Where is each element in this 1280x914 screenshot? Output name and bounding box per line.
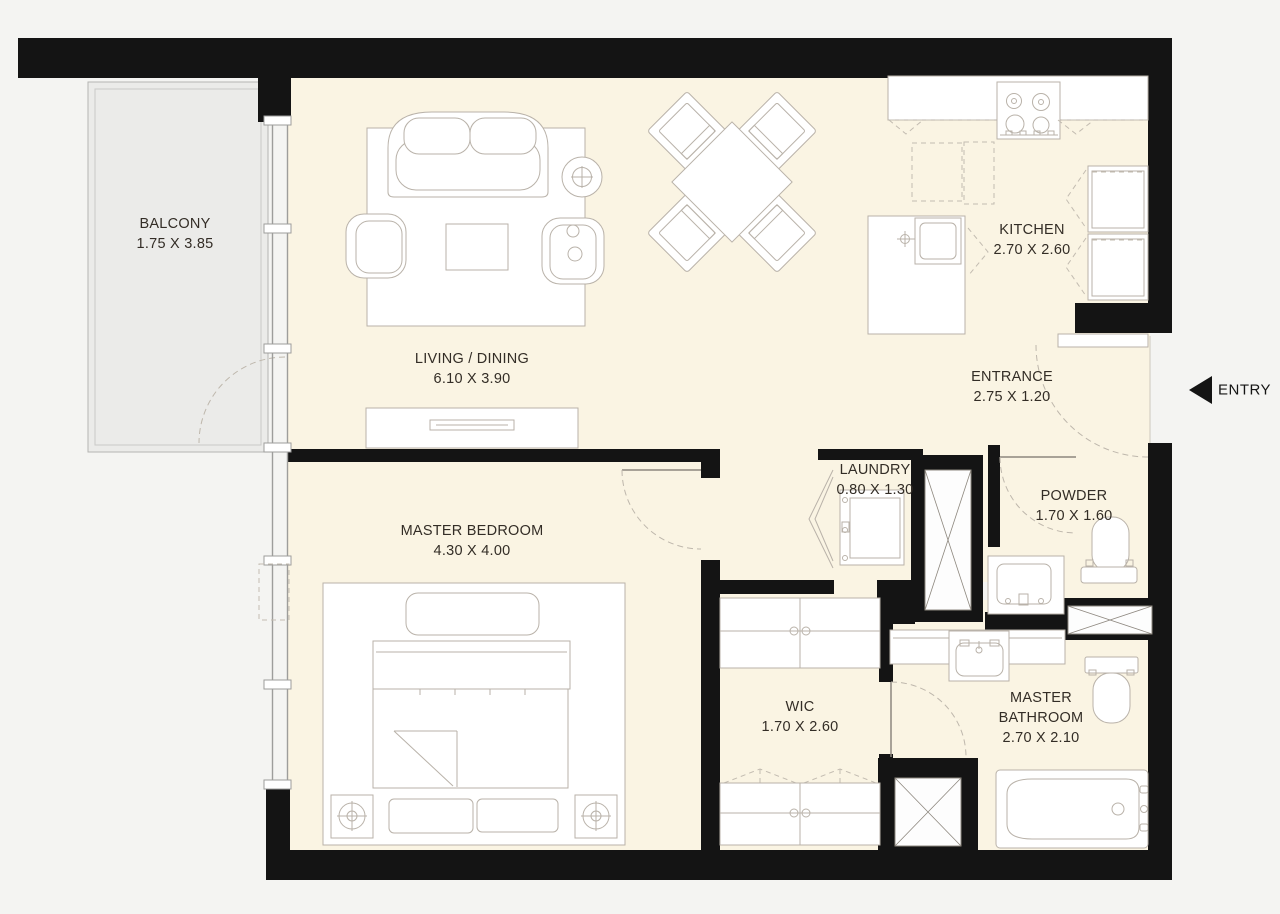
master-bedroom-label: MASTER BEDROOM 4.30 X 4.00	[401, 521, 544, 561]
bedroom-furniture	[323, 583, 625, 845]
washing-machine	[840, 490, 904, 565]
pillow	[389, 799, 473, 833]
coffee-table	[446, 224, 508, 270]
balcony-deck	[88, 82, 285, 452]
kitchen-cabinet	[1088, 234, 1148, 300]
closet-unit	[720, 598, 880, 668]
entry-label: ENTRY	[1218, 382, 1271, 399]
closet-unit	[720, 783, 880, 845]
balcony-label: BALCONY 1.75 X 3.85	[137, 214, 214, 254]
master-bathroom-label: MASTER BATHROOM 2.70 X 2.10	[982, 688, 1100, 748]
living-dining-label: LIVING / DINING 6.10 X 3.90	[415, 349, 529, 389]
armchair	[346, 214, 406, 278]
pillow	[477, 799, 558, 832]
bed-bench	[406, 593, 539, 635]
kitchen-cabinet	[1088, 166, 1148, 232]
bathtub	[996, 770, 1148, 848]
floor-plan: BALCONY 1.75 X 3.85 LIVING / DINING 6.10…	[0, 0, 1280, 914]
kitchen-island	[868, 216, 965, 334]
powder-label: POWDER 1.70 X 1.60	[1036, 486, 1113, 526]
floor-plan-drawing	[0, 0, 1280, 914]
sofa	[388, 112, 548, 197]
wall-cabinet-panel	[1068, 606, 1152, 634]
powder-vanity	[988, 556, 1064, 614]
entry-threshold	[1058, 334, 1148, 347]
stove	[997, 82, 1060, 139]
armchair	[542, 218, 604, 284]
entry-arrow-icon	[1189, 376, 1212, 404]
curtain-mark	[259, 564, 289, 620]
nightstand	[575, 795, 617, 838]
wic-label: WIC 1.70 X 2.60	[762, 697, 839, 737]
kitchen-sink	[915, 218, 961, 264]
side-table	[562, 157, 602, 197]
laundry-label: LAUNDRY 0.80 X 1.30	[837, 460, 914, 500]
tv-console	[366, 408, 578, 448]
kitchen-label: KITCHEN 2.70 X 2.60	[994, 220, 1071, 260]
shaft-panel	[925, 470, 971, 610]
nightstand	[331, 795, 373, 838]
bed	[373, 641, 570, 833]
entrance-label: ENTRANCE 2.75 X 1.20	[971, 367, 1053, 407]
shaft-panel	[895, 778, 961, 846]
